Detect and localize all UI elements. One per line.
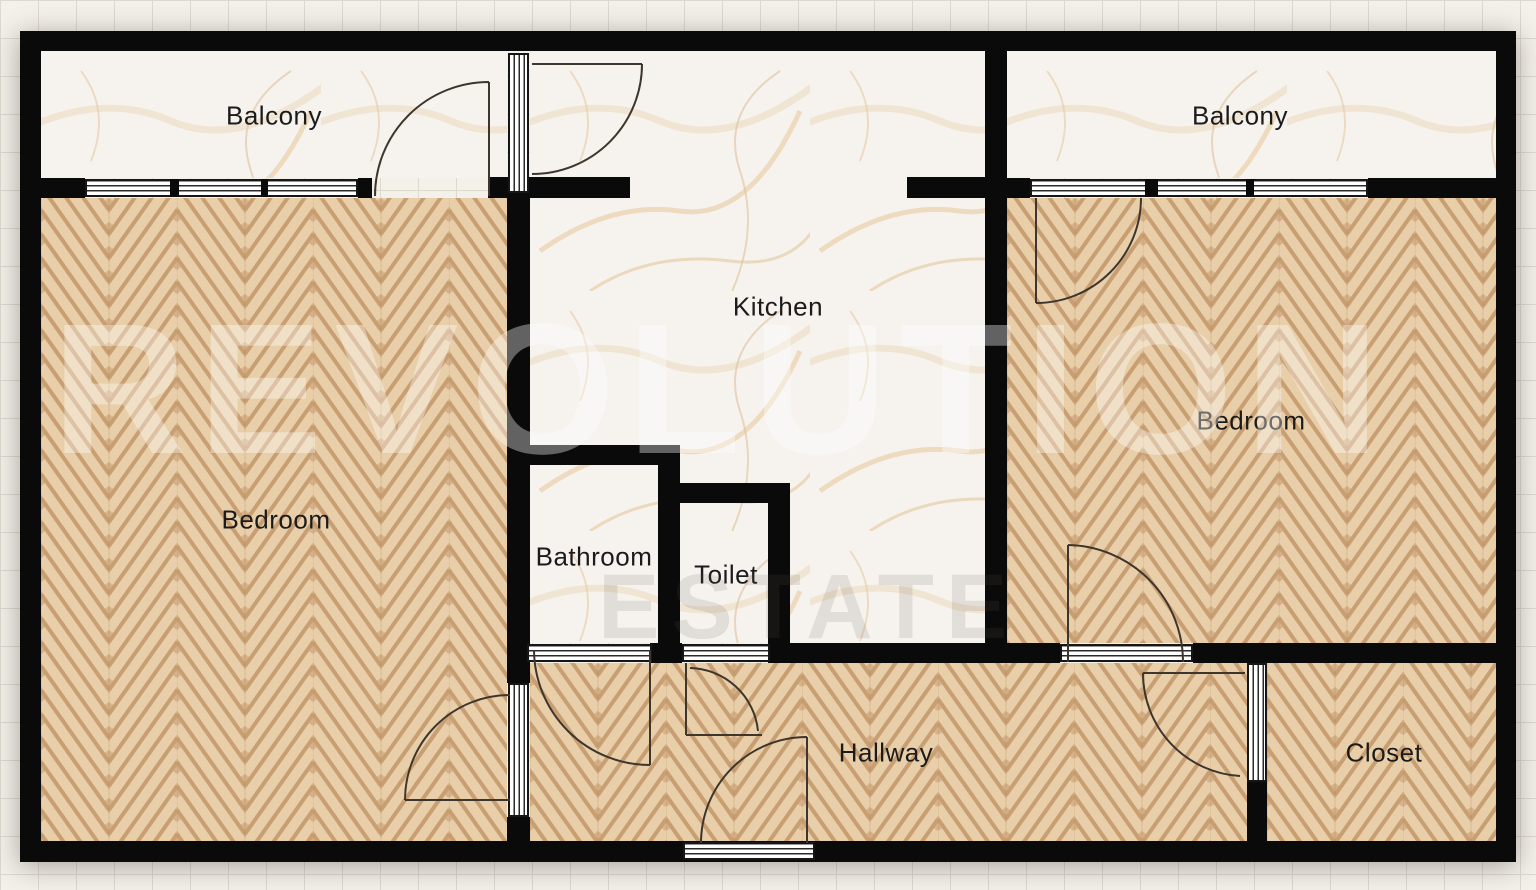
- window-mullion: [170, 179, 179, 197]
- door-threshold-entry: [683, 842, 815, 860]
- wall-hallway-top-c: [1193, 643, 1496, 663]
- wall-outer-right: [1496, 31, 1516, 862]
- wall-balcony-right-stub-a: [1007, 178, 1030, 198]
- wall-kitchen-bedroom-right: [985, 51, 1007, 663]
- room-label-bathroom: Bathroom: [536, 542, 653, 573]
- window-mullion: [1246, 179, 1254, 197]
- door-jamb-balcony-kitchen: [508, 53, 529, 193]
- wall-toilet-top: [658, 483, 790, 503]
- wall-bathroom-top: [507, 445, 680, 465]
- door-jamb-closet: [1247, 663, 1267, 782]
- wall-outer-top: [20, 31, 1516, 51]
- wall-balcony-left-stub-a: [41, 178, 85, 198]
- room-label-hallway: Hallway: [839, 738, 934, 769]
- room-label-balcony-left: Balcony: [226, 101, 322, 132]
- room-label-closet: Closet: [1346, 738, 1423, 769]
- window-mullion: [261, 179, 268, 197]
- room-label-kitchen: Kitchen: [733, 292, 823, 323]
- wall-hallway-top-b: [770, 643, 1060, 663]
- wall-bedroom-left-stub: [507, 817, 530, 841]
- wall-bedroom-left-kitchen: [507, 197, 530, 683]
- room-label-toilet: Toilet: [694, 560, 758, 591]
- wall-bathroom-toilet: [658, 445, 680, 663]
- door-threshold-toilet: [682, 644, 770, 662]
- wall-closet-stub: [1247, 782, 1267, 841]
- wall-balcony-right-stub-b: [1368, 178, 1496, 198]
- wall-outer-left: [20, 31, 41, 862]
- wall-toilet-right: [768, 483, 790, 663]
- wall-balcony-left-stub-b: [358, 178, 372, 198]
- door-threshold-bedroom-right: [1060, 644, 1193, 662]
- window-mullion: [1145, 179, 1158, 197]
- wall-hallway-top-a: [650, 643, 682, 663]
- window-balcony-right: [1030, 179, 1368, 197]
- room-label-bedroom-right: Bedroom: [1197, 406, 1306, 437]
- floor-plan: Balcony Kitchen Balcony Bedroom Bedroom …: [0, 0, 1536, 890]
- room-label-bedroom-left: Bedroom: [222, 505, 331, 536]
- door-threshold-bathroom: [527, 644, 652, 662]
- door-jamb-bedroom-left: [508, 683, 529, 817]
- window-balcony-left: [85, 179, 358, 197]
- wall-stub-kitchen-right: [907, 177, 1007, 198]
- room-label-balcony-right: Balcony: [1192, 101, 1288, 132]
